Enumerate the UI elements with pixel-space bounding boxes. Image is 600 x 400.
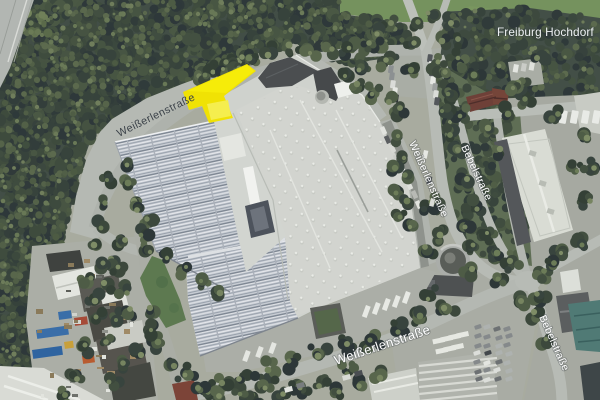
svg-text:Freiburg Hochdorf: Freiburg Hochdorf [497, 25, 594, 39]
